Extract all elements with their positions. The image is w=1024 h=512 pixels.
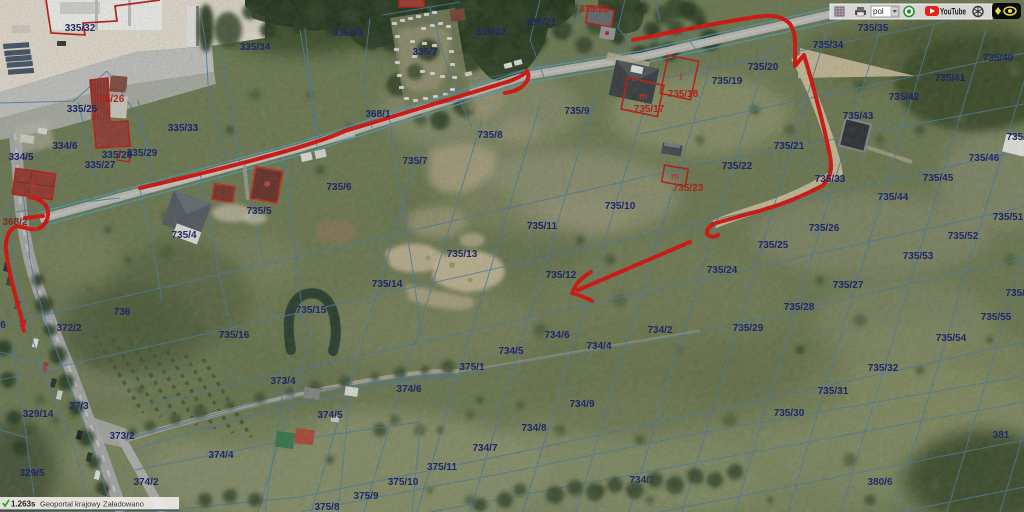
svg-text:YouTube: YouTube xyxy=(940,7,966,17)
svg-text:pol: pol xyxy=(873,7,884,16)
svg-text:Geoportal krajowy: Geoportal krajowy xyxy=(40,500,101,509)
svg-text:Załadowano: Załadowano xyxy=(103,500,144,509)
svg-text:1.263s: 1.263s xyxy=(11,500,36,509)
